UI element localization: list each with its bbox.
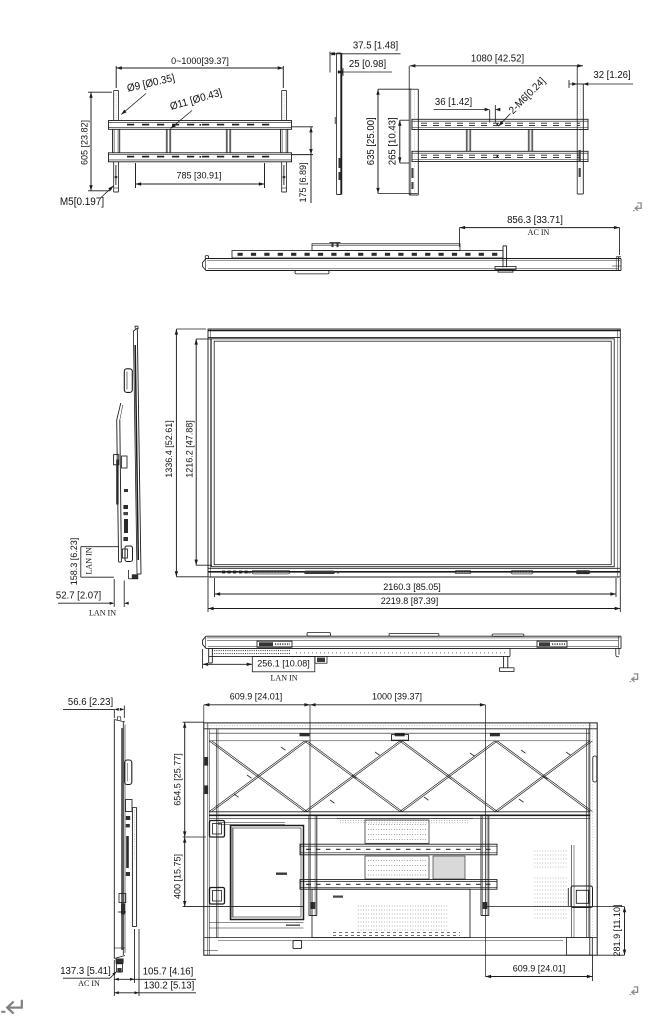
svg-text:0~1000[39.37]: 0~1000[39.37]	[171, 56, 229, 66]
svg-text:158.3 [6.23]: 158.3 [6.23]	[69, 538, 79, 586]
svg-text:LAN IN: LAN IN	[84, 547, 93, 574]
svg-text:1336.4 [52.61]: 1336.4 [52.61]	[164, 420, 174, 478]
svg-text:785 [30.91]: 785 [30.91]	[176, 170, 221, 180]
svg-text:LAN IN: LAN IN	[89, 608, 116, 617]
svg-text:281.9 [11.10]: 281.9 [11.10]	[612, 905, 622, 957]
svg-text:609.9 [24.01]: 609.9 [24.01]	[230, 691, 283, 701]
svg-text:137.3 [5.41]: 137.3 [5.41]	[60, 966, 111, 977]
svg-text:105.7 [4.16]: 105.7 [4.16]	[143, 966, 194, 977]
svg-text:1216.2 [47.88]: 1216.2 [47.88]	[184, 420, 194, 478]
svg-text:265 [10.43]: 265 [10.43]	[387, 117, 398, 165]
svg-text:LAN IN: LAN IN	[270, 673, 297, 682]
svg-text:25 [0.98]: 25 [0.98]	[349, 59, 386, 70]
svg-text:2219.8 [87.39]: 2219.8 [87.39]	[381, 596, 439, 606]
svg-text:52.7 [2.07]: 52.7 [2.07]	[56, 590, 101, 601]
svg-text:605 [23.82]: 605 [23.82]	[79, 120, 89, 165]
svg-text:130.2 [5.13]: 130.2 [5.13]	[144, 980, 195, 991]
svg-text:2160.3 [85.05]: 2160.3 [85.05]	[383, 582, 441, 592]
svg-text:37.5 [1.48]: 37.5 [1.48]	[353, 40, 398, 51]
svg-text:36 [1.42]: 36 [1.42]	[435, 97, 472, 108]
svg-text:256.1 [10.08]: 256.1 [10.08]	[257, 658, 310, 668]
svg-text:856.3 [33.71]: 856.3 [33.71]	[507, 215, 563, 226]
svg-text:AC IN: AC IN	[78, 979, 100, 988]
svg-text:654.5 [25.77]: 654.5 [25.77]	[172, 753, 182, 806]
svg-text:56.6 [2.23]: 56.6 [2.23]	[68, 697, 113, 708]
svg-text:AC IN: AC IN	[528, 228, 550, 237]
svg-text:635 [25.00]: 635 [25.00]	[366, 117, 377, 165]
svg-text:32 [1.26]: 32 [1.26]	[593, 70, 630, 81]
svg-text:400 [15.75]: 400 [15.75]	[172, 854, 182, 899]
svg-text:175 [6.89]: 175 [6.89]	[298, 162, 308, 202]
svg-text:1000 [39.37]: 1000 [39.37]	[372, 691, 422, 701]
svg-text:1080 [42.52]: 1080 [42.52]	[471, 53, 524, 64]
svg-text:609.9 [24.01]: 609.9 [24.01]	[513, 963, 566, 973]
svg-text:M5[0.197]: M5[0.197]	[60, 197, 104, 208]
